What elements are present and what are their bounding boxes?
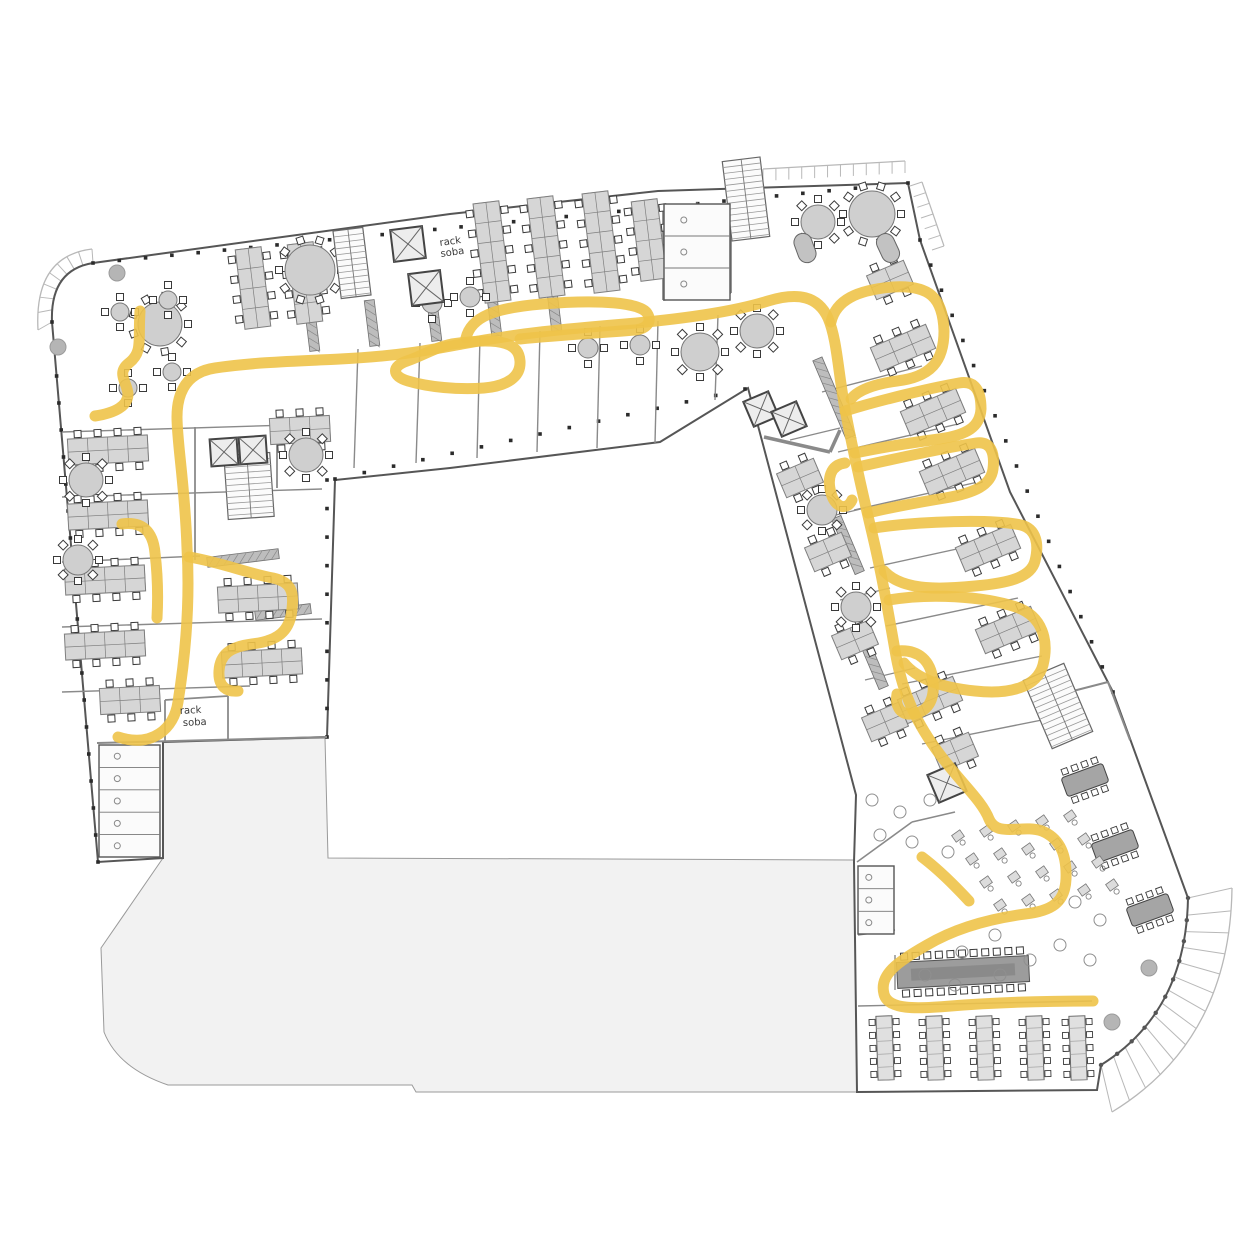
chair bbox=[1146, 890, 1154, 898]
table-top bbox=[630, 335, 650, 355]
facade-module-dot bbox=[827, 189, 831, 193]
chair bbox=[1043, 1031, 1049, 1037]
facade-module-dot bbox=[929, 263, 933, 267]
terrace-tick bbox=[1188, 888, 1232, 898]
table-top bbox=[681, 333, 719, 371]
chair bbox=[94, 429, 101, 436]
facade-module-dot bbox=[50, 320, 54, 324]
chair bbox=[510, 285, 518, 293]
table-top bbox=[849, 191, 895, 237]
chair bbox=[111, 558, 118, 565]
facade-module-dot bbox=[1058, 565, 1062, 569]
chair bbox=[838, 219, 845, 226]
chair bbox=[1111, 826, 1119, 834]
terrace-tick bbox=[1187, 911, 1231, 915]
terrace-tick bbox=[57, 264, 67, 275]
mullion-dot bbox=[1154, 1011, 1158, 1015]
chair bbox=[840, 211, 847, 218]
floor-plan-svg: rack soba rack soba bbox=[0, 0, 1250, 1250]
chair bbox=[832, 604, 839, 611]
facade-module-dot bbox=[80, 671, 84, 675]
facade-module-dot bbox=[1100, 665, 1104, 669]
chair bbox=[303, 429, 310, 436]
chair bbox=[114, 428, 121, 435]
chair bbox=[226, 613, 233, 620]
facade-module-dot bbox=[170, 253, 174, 257]
column bbox=[50, 339, 66, 355]
chair bbox=[1071, 764, 1079, 772]
chair bbox=[270, 676, 277, 683]
facade-module-dot bbox=[509, 439, 513, 443]
chair bbox=[982, 949, 989, 956]
chair bbox=[871, 1071, 877, 1077]
chair bbox=[994, 1057, 1000, 1063]
facade-module-dot bbox=[775, 194, 779, 198]
chair bbox=[610, 196, 618, 204]
chair bbox=[228, 256, 236, 264]
mullion-dot bbox=[1182, 939, 1186, 943]
mullion-dot bbox=[1163, 995, 1167, 999]
chair bbox=[471, 250, 479, 258]
chair bbox=[564, 280, 572, 288]
facade-module-dot bbox=[685, 400, 689, 404]
mullion-dot bbox=[1129, 1039, 1133, 1043]
facade-module-dot bbox=[854, 186, 858, 190]
facade-module-dot bbox=[940, 288, 944, 292]
chair bbox=[250, 677, 257, 684]
facade-module-dot bbox=[617, 210, 621, 214]
chair bbox=[944, 1057, 950, 1063]
facade-module-dot bbox=[433, 228, 437, 232]
terrace-tick bbox=[1125, 1047, 1145, 1088]
facade-module-dot bbox=[567, 426, 571, 430]
chair bbox=[798, 507, 805, 514]
chair bbox=[136, 462, 143, 469]
facade-module-dot bbox=[325, 478, 329, 482]
round-table bbox=[832, 583, 881, 632]
chair bbox=[612, 216, 620, 224]
chair bbox=[131, 622, 138, 629]
chair bbox=[1091, 789, 1099, 797]
table-top bbox=[876, 1016, 894, 1081]
chair bbox=[230, 276, 238, 284]
chair bbox=[268, 291, 276, 299]
chair bbox=[1111, 858, 1119, 866]
table-top bbox=[111, 303, 129, 321]
washroom-outline bbox=[664, 204, 730, 300]
chair bbox=[562, 260, 570, 268]
chair bbox=[148, 713, 155, 720]
facade-module-dot bbox=[480, 445, 484, 449]
chair bbox=[898, 211, 905, 218]
mullion-dot bbox=[1099, 1063, 1103, 1067]
chair bbox=[96, 557, 103, 564]
chair bbox=[1087, 1044, 1093, 1050]
chair bbox=[869, 1019, 875, 1025]
chair bbox=[1005, 947, 1012, 954]
chair bbox=[473, 270, 481, 278]
chair bbox=[246, 612, 253, 619]
chair bbox=[530, 284, 538, 292]
terrace-tick bbox=[921, 214, 933, 218]
terrace-tick bbox=[50, 273, 62, 282]
chair bbox=[893, 1031, 899, 1037]
terrace-tick bbox=[925, 225, 937, 229]
terrace-tick bbox=[1179, 962, 1220, 974]
chair bbox=[943, 1031, 949, 1037]
chair bbox=[96, 529, 103, 536]
terrace-edge bbox=[763, 161, 905, 169]
floor-plan-page: rack soba rack soba bbox=[0, 0, 1250, 1250]
chair bbox=[169, 384, 176, 391]
chair bbox=[117, 294, 124, 301]
column bbox=[109, 265, 125, 281]
chair bbox=[585, 279, 593, 287]
facade-module-dot bbox=[1090, 640, 1094, 644]
chair bbox=[1063, 1045, 1069, 1051]
chair bbox=[133, 592, 140, 599]
facade-module-dot bbox=[325, 678, 329, 682]
washroom-strip bbox=[858, 866, 894, 934]
chair bbox=[316, 408, 323, 415]
chair bbox=[626, 228, 634, 236]
chair bbox=[58, 540, 68, 550]
chair bbox=[83, 500, 90, 507]
facade-module-dot bbox=[325, 592, 329, 596]
chair bbox=[894, 1057, 900, 1063]
chair bbox=[569, 345, 576, 352]
facade-module-dot bbox=[325, 707, 329, 711]
chair bbox=[993, 1031, 999, 1037]
chair bbox=[1101, 785, 1109, 793]
terrace-tick bbox=[917, 203, 929, 207]
chair bbox=[869, 1032, 875, 1038]
facade-module-dot bbox=[1004, 439, 1008, 443]
chair bbox=[60, 477, 67, 484]
chair bbox=[924, 952, 931, 959]
chair bbox=[73, 660, 80, 667]
chair bbox=[1146, 922, 1154, 930]
chair bbox=[815, 196, 822, 203]
table-top bbox=[63, 545, 93, 575]
chair bbox=[970, 949, 977, 956]
table-top bbox=[926, 1016, 944, 1081]
elevator-shaft bbox=[239, 436, 268, 465]
chair bbox=[265, 272, 273, 280]
chair bbox=[585, 361, 592, 368]
facade-module-dot bbox=[722, 199, 726, 203]
chair bbox=[945, 1070, 951, 1076]
table-top bbox=[1069, 1016, 1087, 1081]
chair bbox=[128, 714, 135, 721]
chair bbox=[853, 583, 860, 590]
chair bbox=[451, 294, 458, 301]
facade-module-dot bbox=[1079, 615, 1083, 619]
chair bbox=[185, 321, 192, 328]
chair bbox=[1156, 887, 1164, 895]
facade-module-dot bbox=[325, 535, 329, 539]
terrace-tick bbox=[914, 193, 926, 197]
chair bbox=[503, 226, 511, 234]
terrace-tick bbox=[1168, 990, 1205, 1011]
chair bbox=[74, 430, 81, 437]
terrace-tick bbox=[910, 182, 922, 186]
chair bbox=[54, 557, 61, 564]
chair bbox=[902, 990, 909, 997]
chair bbox=[1081, 792, 1089, 800]
chair bbox=[944, 1044, 950, 1050]
chair bbox=[754, 351, 761, 358]
chair bbox=[1101, 830, 1109, 838]
chair bbox=[919, 1019, 925, 1025]
chair bbox=[1044, 1057, 1050, 1063]
table-top bbox=[69, 463, 103, 497]
chair bbox=[1166, 915, 1174, 923]
chair bbox=[106, 680, 113, 687]
facade-module-dot bbox=[325, 650, 329, 654]
chair bbox=[629, 248, 637, 256]
table-top bbox=[460, 287, 480, 307]
facade-module-dot bbox=[918, 238, 922, 242]
facade-module-dot bbox=[91, 261, 95, 265]
facade-module-dot bbox=[275, 243, 279, 247]
terrace-tick bbox=[38, 322, 52, 330]
chair bbox=[75, 536, 82, 543]
facade-module-dot bbox=[801, 192, 805, 196]
chair bbox=[154, 369, 161, 376]
chair bbox=[920, 1058, 926, 1064]
chair bbox=[815, 242, 822, 249]
chair bbox=[326, 452, 333, 459]
chair bbox=[637, 358, 644, 365]
chair bbox=[280, 452, 287, 459]
chair bbox=[1064, 1071, 1070, 1077]
table-top bbox=[976, 1016, 994, 1081]
courtyard-layer bbox=[101, 738, 857, 1092]
chair bbox=[134, 492, 141, 499]
facade-module-dot bbox=[906, 181, 910, 185]
terrace-tick bbox=[1145, 1027, 1173, 1061]
chair bbox=[296, 409, 303, 416]
chair bbox=[1016, 947, 1023, 954]
column bbox=[1104, 1014, 1120, 1030]
chair bbox=[895, 1070, 901, 1076]
chair bbox=[113, 593, 120, 600]
chair bbox=[731, 328, 738, 335]
chair bbox=[1019, 1019, 1025, 1025]
chair bbox=[859, 237, 868, 246]
chair bbox=[429, 316, 436, 323]
chair bbox=[582, 260, 590, 268]
washroom-strip bbox=[664, 204, 730, 300]
chair bbox=[266, 611, 273, 618]
chair bbox=[983, 986, 990, 993]
terrace-tick bbox=[78, 252, 82, 266]
facade-module-dot bbox=[1015, 464, 1019, 468]
chair bbox=[777, 328, 784, 335]
facade-module-dot bbox=[87, 752, 91, 756]
chair bbox=[315, 236, 324, 245]
chair bbox=[483, 294, 490, 301]
chair bbox=[877, 182, 886, 191]
terrace-tick bbox=[44, 284, 57, 289]
chair bbox=[108, 715, 115, 722]
chair bbox=[1043, 1018, 1049, 1024]
chair bbox=[1007, 984, 1014, 991]
facade-module-dot bbox=[333, 477, 337, 481]
facade-module-dot bbox=[55, 374, 59, 378]
chair bbox=[116, 463, 123, 470]
chair bbox=[1019, 1032, 1025, 1038]
chair bbox=[230, 678, 237, 685]
chair bbox=[1020, 1045, 1026, 1051]
chair bbox=[146, 678, 153, 685]
table-top bbox=[163, 363, 181, 381]
facade-module-dot bbox=[196, 251, 200, 255]
mullion-dot bbox=[1142, 1026, 1146, 1030]
chair bbox=[617, 255, 625, 263]
chair bbox=[1121, 855, 1129, 863]
chair bbox=[1136, 894, 1144, 902]
chair bbox=[921, 1071, 927, 1077]
facade-module-dot bbox=[144, 256, 148, 260]
chair bbox=[672, 349, 679, 356]
chair bbox=[993, 948, 1000, 955]
elevator-shaft bbox=[408, 270, 444, 306]
terrace-tick bbox=[1183, 947, 1225, 954]
chair bbox=[296, 295, 305, 304]
chair bbox=[133, 657, 140, 664]
chair bbox=[894, 1044, 900, 1050]
chair bbox=[853, 625, 860, 632]
chair bbox=[1087, 1057, 1093, 1063]
round-table bbox=[54, 536, 103, 585]
chair bbox=[131, 557, 138, 564]
mullion-dot bbox=[1115, 1052, 1119, 1056]
mullion-dot bbox=[1171, 977, 1175, 981]
terrace-tick bbox=[38, 310, 52, 313]
chair bbox=[1061, 768, 1069, 776]
facade-module-dot bbox=[950, 314, 954, 318]
facade-module-dot bbox=[972, 364, 976, 368]
chair bbox=[1062, 1032, 1068, 1038]
terrace-tick bbox=[1154, 1015, 1186, 1045]
chair bbox=[287, 311, 295, 319]
chair bbox=[914, 989, 921, 996]
chair bbox=[577, 220, 585, 228]
facade-module-dot bbox=[117, 259, 121, 263]
washroom-outline bbox=[99, 745, 160, 857]
facade-module-dot bbox=[94, 833, 98, 837]
chair bbox=[520, 205, 528, 213]
chair bbox=[874, 604, 881, 611]
chair bbox=[315, 295, 324, 304]
chair bbox=[958, 950, 965, 957]
chair bbox=[102, 309, 109, 316]
facade-module-dot bbox=[57, 401, 61, 405]
chair bbox=[117, 324, 124, 331]
chair bbox=[972, 986, 979, 993]
chair bbox=[161, 348, 169, 356]
chair bbox=[468, 230, 476, 238]
chair bbox=[1086, 1018, 1092, 1024]
chair bbox=[920, 1045, 926, 1051]
chair bbox=[601, 345, 608, 352]
facade-module-dot bbox=[993, 414, 997, 418]
chair bbox=[501, 206, 509, 214]
chair bbox=[994, 1044, 1000, 1050]
washroom-strip bbox=[99, 745, 160, 857]
chair bbox=[288, 640, 295, 647]
facade-module-dot bbox=[380, 233, 384, 237]
facade-module-dot bbox=[325, 507, 329, 511]
chair bbox=[621, 342, 628, 349]
chair bbox=[126, 679, 133, 686]
chair bbox=[110, 385, 117, 392]
facade-module-dot bbox=[512, 220, 516, 224]
terrace-tick bbox=[1185, 932, 1228, 933]
chair bbox=[697, 374, 704, 381]
chair bbox=[467, 278, 474, 285]
chair bbox=[73, 595, 80, 602]
chair bbox=[75, 578, 82, 585]
chair bbox=[467, 310, 474, 317]
terrace-tick bbox=[1162, 1003, 1196, 1028]
chair bbox=[111, 623, 118, 630]
facade-module-dot bbox=[626, 413, 630, 417]
chair bbox=[525, 245, 533, 253]
chair bbox=[1091, 757, 1099, 765]
chair bbox=[697, 324, 704, 331]
chair bbox=[233, 296, 241, 304]
table-top bbox=[578, 338, 598, 358]
table-top bbox=[841, 592, 871, 622]
chair bbox=[1018, 984, 1025, 991]
chair bbox=[270, 311, 278, 319]
chair bbox=[140, 385, 147, 392]
chair bbox=[276, 410, 283, 417]
mullion-dot bbox=[1186, 896, 1190, 900]
chair bbox=[937, 988, 944, 995]
chair bbox=[1081, 760, 1089, 768]
chair bbox=[969, 1019, 975, 1025]
facade-module-dot bbox=[223, 248, 227, 252]
facade-module-dot bbox=[1036, 514, 1040, 518]
chair bbox=[322, 306, 330, 314]
elevator-shaft bbox=[390, 226, 426, 262]
chair bbox=[870, 1058, 876, 1064]
chair bbox=[653, 342, 660, 349]
chair bbox=[93, 594, 100, 601]
table-top bbox=[1026, 1016, 1044, 1081]
facade-module-dot bbox=[1047, 540, 1051, 544]
chair bbox=[93, 659, 100, 666]
chair bbox=[91, 624, 98, 631]
chair bbox=[290, 675, 297, 682]
mullion-dot bbox=[1185, 918, 1189, 922]
facade-module-dot bbox=[564, 215, 568, 219]
terrace-tick bbox=[1174, 977, 1213, 993]
chair bbox=[859, 182, 868, 191]
chair bbox=[522, 225, 530, 233]
chair bbox=[943, 1018, 949, 1024]
chair bbox=[224, 578, 231, 585]
chair bbox=[71, 625, 78, 632]
facade-module-dot bbox=[325, 621, 329, 625]
chair bbox=[1045, 1070, 1051, 1076]
chair bbox=[619, 275, 627, 283]
facade-module-dot bbox=[961, 339, 965, 343]
